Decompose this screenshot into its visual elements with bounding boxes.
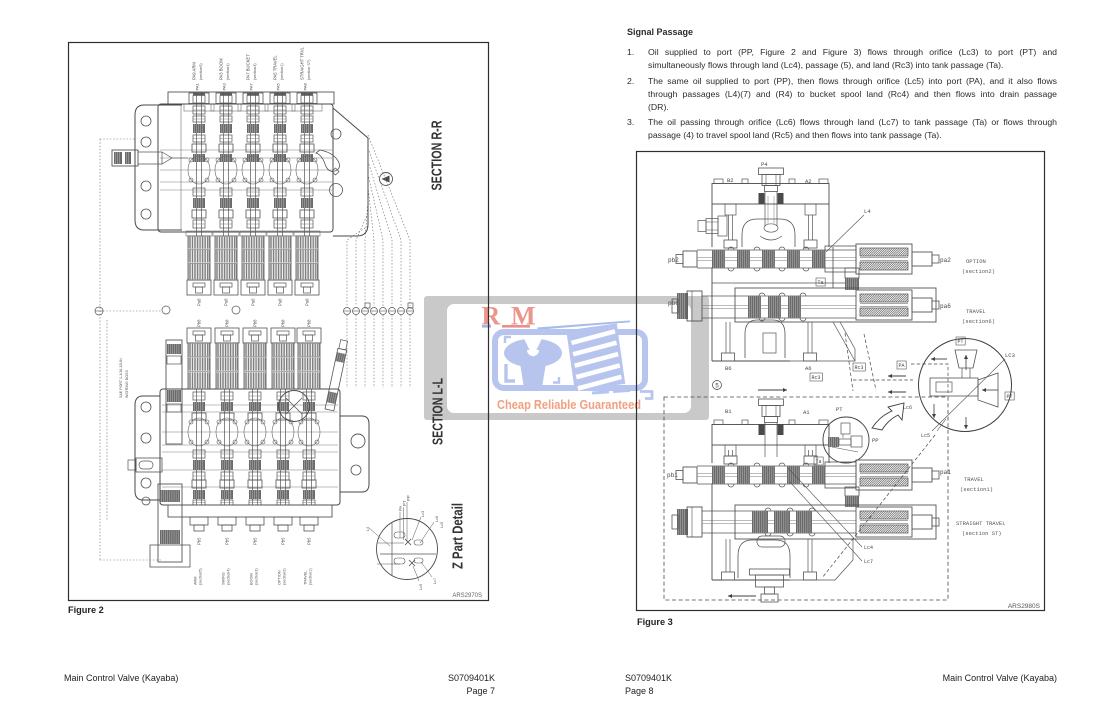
svg-text:L4: L4 xyxy=(864,208,871,215)
svg-text:A1: A1 xyxy=(803,409,810,416)
svg-text:Lc5: Lc5 xyxy=(419,584,423,590)
svg-text:(section ST): (section ST) xyxy=(307,59,311,80)
svg-text:(section ST): (section ST) xyxy=(962,530,1002,537)
svg-text:L4: L4 xyxy=(366,527,370,531)
svg-text:PP: PP xyxy=(406,495,411,501)
svg-text:(section4): (section4) xyxy=(226,63,230,80)
svg-text:Pb5: Pb5 xyxy=(197,537,202,545)
svg-text:5: 5 xyxy=(715,384,719,390)
svg-text:SAE PORT 1-1/16-12UN: SAE PORT 1-1/16-12UN xyxy=(119,358,123,398)
svg-text:Lc3: Lc3 xyxy=(421,511,425,517)
svg-text:PA9 ARM: PA9 ARM xyxy=(192,62,197,80)
svg-text:PA7 BUCKET: PA7 BUCKET xyxy=(246,54,251,80)
svg-text:Rc3: Rc3 xyxy=(855,365,864,371)
svg-text:Pa8: Pa8 xyxy=(278,298,283,306)
svg-text:pb1: pb1 xyxy=(667,472,678,479)
svg-text:Pb5: Pb5 xyxy=(253,537,258,545)
svg-text:PA1: PA1 xyxy=(195,82,200,90)
svg-text:Pb8: Pb8 xyxy=(307,319,312,327)
svg-text:Lc7: Lc7 xyxy=(433,578,437,584)
svg-text:(section1): (section1) xyxy=(280,63,284,80)
svg-text:B6: B6 xyxy=(725,365,732,372)
svg-text:Pb8: Pb8 xyxy=(253,319,258,327)
svg-text:Pa8: Pa8 xyxy=(305,298,310,306)
svg-text:BOOM: BOOM xyxy=(250,573,254,585)
svg-text:Figure 2: Figure 2 xyxy=(68,605,104,615)
svg-text:Figure 3: Figure 3 xyxy=(637,617,673,627)
svg-text:pa1: pa1 xyxy=(940,469,951,476)
svg-text:(section1): (section1) xyxy=(960,486,993,493)
svg-text:SECTION L-L: SECTION L-L xyxy=(430,378,447,445)
svg-text:Pb5: Pb5 xyxy=(281,537,286,545)
svg-text:(section4): (section4) xyxy=(227,568,231,585)
svg-text:A6: A6 xyxy=(805,365,812,372)
svg-text:B2: B2 xyxy=(727,177,734,184)
svg-text:PT: PT xyxy=(836,406,843,413)
svg-text:(section3): (section3) xyxy=(255,568,259,585)
svg-text:PA3 BOOM: PA3 BOOM xyxy=(219,58,224,80)
svg-text:P4: P4 xyxy=(761,161,768,168)
svg-text:SWING: SWING xyxy=(222,572,226,585)
svg-text:(section3): (section3) xyxy=(253,63,257,80)
svg-text:(section5): (section5) xyxy=(199,568,203,585)
svg-text:Pb8: Pb8 xyxy=(197,319,202,327)
svg-text:Pb8: Pb8 xyxy=(281,319,286,327)
svg-text:STRAIGHT TRAVEL: STRAIGHT TRAVEL xyxy=(956,520,1006,527)
svg-text:ARS2980S: ARS2980S xyxy=(1008,603,1041,610)
svg-text:Rc3: Rc3 xyxy=(812,375,821,381)
svg-text:Pb5: Pb5 xyxy=(225,537,230,545)
svg-text:Pa8: Pa8 xyxy=(251,298,256,306)
svg-text:PA8: PA8 xyxy=(303,82,308,90)
svg-text:Lc6: Lc6 xyxy=(435,516,439,522)
svg-text:LC3: LC3 xyxy=(1005,352,1015,359)
svg-text:Lc5: Lc5 xyxy=(921,433,930,439)
svg-text:TRAVEL: TRAVEL xyxy=(966,308,986,315)
svg-text:PA7: PA7 xyxy=(249,82,254,90)
svg-text:OPTION: OPTION xyxy=(278,570,282,585)
svg-text:ARS2970S: ARS2970S xyxy=(452,593,482,599)
svg-text:B1: B1 xyxy=(725,408,732,415)
svg-text:Lc5: Lc5 xyxy=(440,522,444,528)
svg-text:TRAVEL: TRAVEL xyxy=(964,476,984,483)
svg-text:PA5 TRAVEL: PA5 TRAVEL xyxy=(273,55,278,80)
svg-text:OPTION: OPTION xyxy=(966,258,986,265)
svg-text:(section5): (section5) xyxy=(199,63,203,80)
svg-text:W/O'RING BOSS: W/O'RING BOSS xyxy=(125,370,129,398)
svg-text:Pa8: Pa8 xyxy=(197,298,202,306)
svg-text:A2: A2 xyxy=(805,178,812,185)
svg-text:(section2): (section2) xyxy=(283,568,287,585)
svg-text:PT: PT xyxy=(1007,394,1013,400)
svg-text:Ta: Ta xyxy=(816,459,822,465)
svg-text:Lc4: Lc4 xyxy=(864,545,873,551)
svg-text:PA: PA xyxy=(899,363,905,369)
svg-text:(section6): (section6) xyxy=(962,318,995,325)
svg-text:pa2: pa2 xyxy=(940,257,951,264)
svg-text:SECTION R-R: SECTION R-R xyxy=(429,120,446,190)
svg-text:PA5: PA5 xyxy=(276,82,281,90)
svg-text:Lc6: Lc6 xyxy=(903,405,912,411)
svg-text:(section2): (section2) xyxy=(962,268,995,275)
svg-text:Pb5: Pb5 xyxy=(307,537,312,545)
svg-text:(section1): (section1) xyxy=(309,568,313,585)
svg-text:PP: PP xyxy=(872,437,879,444)
svg-text:Lc7: Lc7 xyxy=(864,559,873,565)
svg-text:PA3: PA3 xyxy=(222,82,227,90)
svg-text:Pb8: Pb8 xyxy=(225,319,230,327)
svg-text:pb2: pb2 xyxy=(668,257,679,264)
svg-text:Pa8: Pa8 xyxy=(224,298,229,306)
svg-text:ARM: ARM xyxy=(194,577,198,585)
svg-text:pa6: pa6 xyxy=(940,303,951,310)
svg-text:PT: PT xyxy=(958,339,964,345)
svg-text:STRAIGHT TRVL: STRAIGHT TRVL xyxy=(300,47,305,80)
svg-text:Z Part Detail: Z Part Detail xyxy=(451,503,467,569)
svg-text:TRAVEL: TRAVEL xyxy=(304,571,308,586)
